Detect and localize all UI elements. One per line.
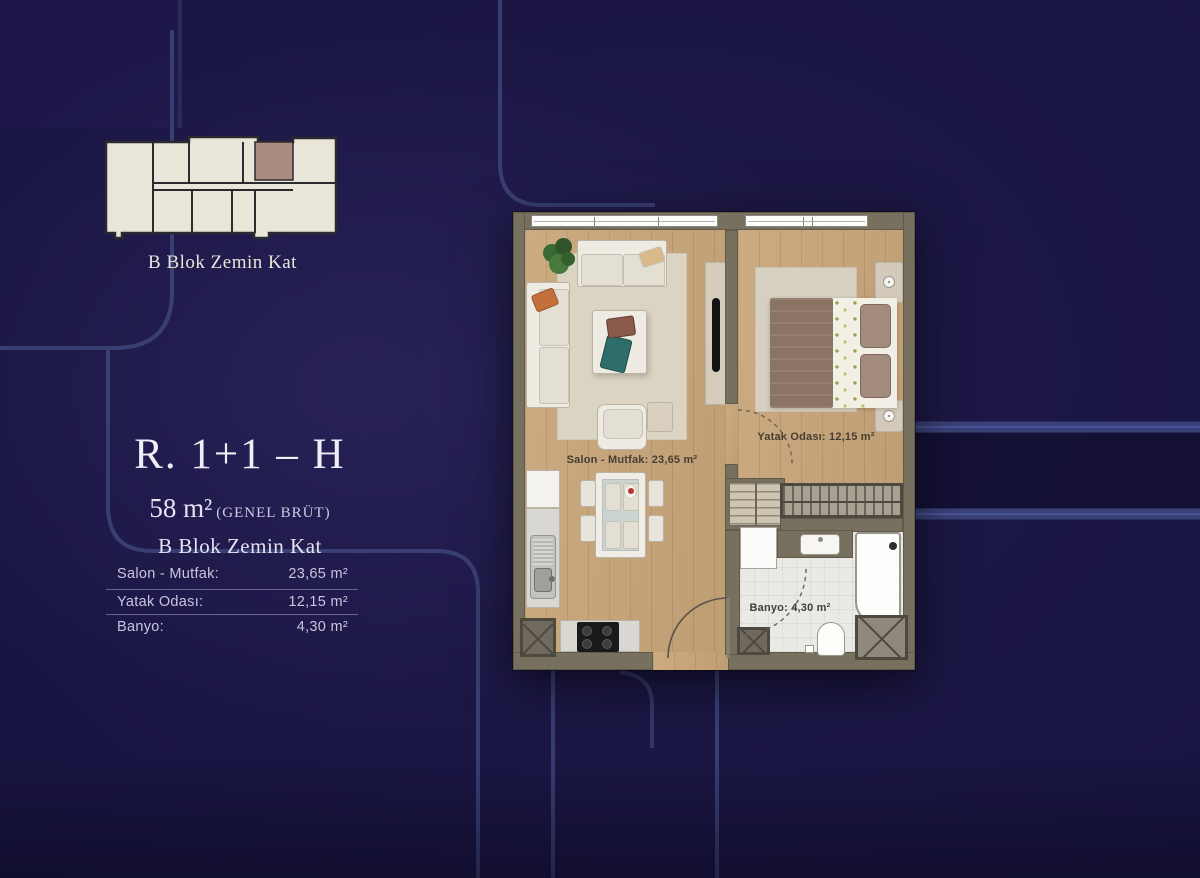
unit-info-block: R. 1+1 – H 58 m² (GENEL BRÜT) B Blok Zem… — [60, 430, 420, 559]
row-value: 12,15 m² — [288, 594, 348, 610]
table-separator — [106, 614, 358, 615]
key-plan-building-outline — [105, 136, 337, 244]
table-row: Banyo: 4,30 m² — [104, 619, 358, 635]
unit-gross-area: 58 m² (GENEL BRÜT) — [60, 493, 420, 524]
row-value: 4,30 m² — [297, 619, 348, 635]
gross-area-value: 58 m² — [149, 493, 212, 523]
door-swing-arcs — [513, 212, 915, 670]
key-plan-caption: B Blok Zemin Kat — [100, 252, 345, 274]
floor-plan: Salon - Mutfak: 23,65 m² Yatak Odası: 12… — [513, 212, 915, 670]
row-label: Yatak Odası: — [117, 594, 203, 610]
row-label: Banyo: — [117, 619, 164, 635]
brochure-page: B Blok Zemin Kat R. 1+1 – H 58 m² (GENEL… — [0, 0, 1200, 878]
key-plan-highlighted-unit — [255, 142, 293, 180]
block-floor-label: B Blok Zemin Kat — [60, 534, 420, 559]
unit-type-title: R. 1+1 – H — [60, 430, 420, 479]
row-label: Salon - Mutfak: — [117, 566, 219, 582]
table-row: Salon - Mutfak: 23,65 m² — [104, 566, 358, 582]
gross-area-note: (GENEL BRÜT) — [216, 505, 330, 521]
row-value: 23,65 m² — [288, 566, 348, 582]
table-separator — [106, 589, 358, 590]
table-row: Yatak Odası: 12,15 m² — [104, 594, 358, 610]
